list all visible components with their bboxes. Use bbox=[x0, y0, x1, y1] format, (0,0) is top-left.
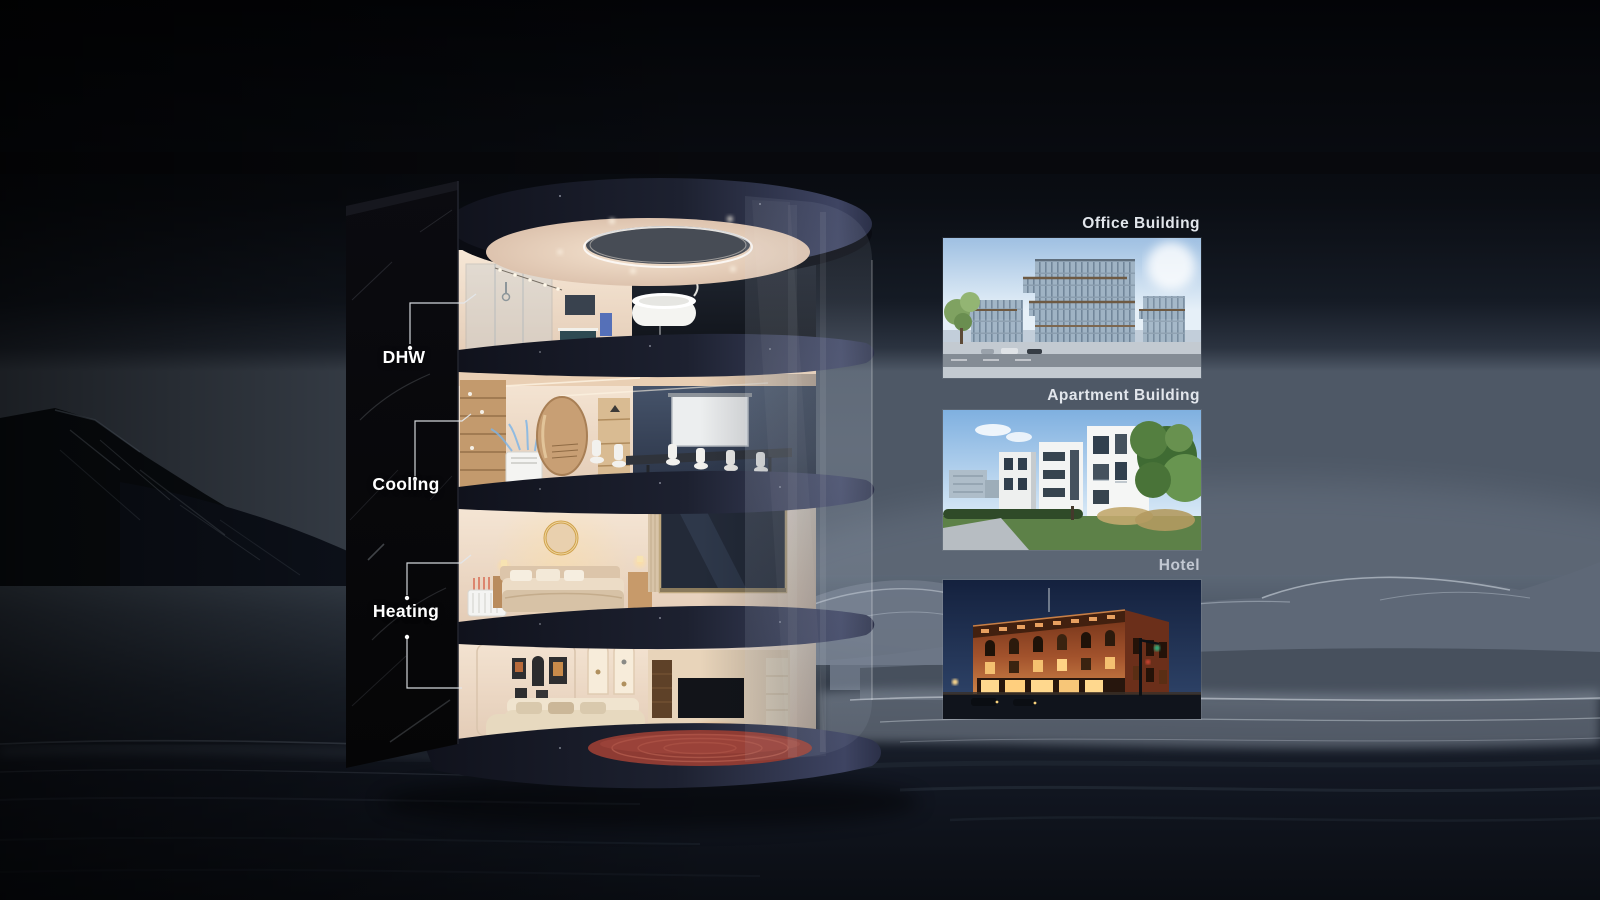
heating-connector-line-upper bbox=[407, 555, 471, 595]
apartment-tree bbox=[1130, 421, 1201, 502]
dhw-label: DHW bbox=[366, 347, 442, 368]
cooling-label: Cooling bbox=[362, 474, 450, 495]
callout-connectors bbox=[0, 0, 1600, 900]
heating-dot-upper bbox=[405, 596, 409, 600]
traffic-light-pole bbox=[1139, 638, 1142, 696]
hotel-storefront bbox=[977, 678, 1125, 694]
dhw-connector-line bbox=[410, 294, 476, 344]
cooling-connector-line bbox=[415, 414, 471, 476]
apartment-grounds bbox=[943, 506, 1201, 550]
office-building-photo[interactable] bbox=[943, 238, 1201, 378]
office-building-label: Office Building bbox=[943, 215, 1200, 233]
hotel-scene bbox=[943, 580, 1201, 719]
apartment-building-scene bbox=[943, 410, 1201, 550]
hotel-label: Hotel bbox=[943, 557, 1200, 575]
heating-dot-lower bbox=[405, 635, 409, 639]
apartment-building-label: Apartment Building bbox=[943, 387, 1200, 405]
apartment-building-photo[interactable] bbox=[943, 410, 1201, 550]
heating-label: Heating bbox=[360, 601, 452, 622]
office-building-scene bbox=[943, 238, 1201, 378]
office-main-tower bbox=[1023, 260, 1135, 346]
hero-scene: DHW Cooling Heating Office Building bbox=[0, 0, 1600, 900]
heating-connector-line-lower bbox=[407, 637, 462, 688]
hotel-photo[interactable] bbox=[943, 580, 1201, 719]
